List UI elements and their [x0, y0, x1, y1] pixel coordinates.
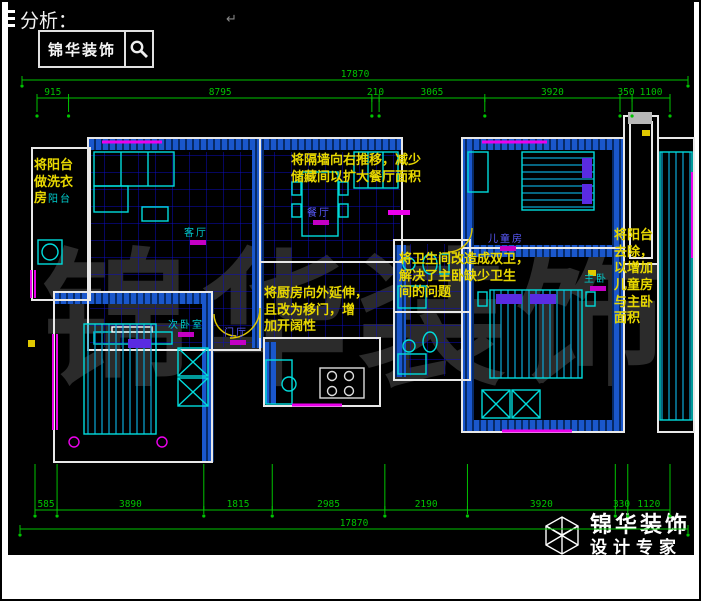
cube-logo-icon [542, 514, 582, 555]
paragraph-mark: ↵ [226, 12, 237, 27]
cad-canvas: 锦华装饰 分析： ↵ 锦华装饰 [8, 2, 694, 555]
footer-brand-tagline: 设计专家 [590, 538, 690, 555]
annotation-bathroom-double: 将卫生间改造成双卫， 解决了主卧缺少卫生 间的问题 [399, 252, 559, 302]
brand-name: 锦华装饰 [40, 32, 126, 66]
annotation-balcony-remove: 将阳台 去除， 以增加 儿童房 与主卧 面积 [614, 228, 672, 328]
clipped-text-fragment [8, 10, 15, 27]
analysis-label: 分析： [20, 6, 77, 33]
annotation-balcony-laundry: 将阳台 做洗衣 房 [34, 158, 100, 208]
annotation-partition-move: 将隔墙向右推移，减少 储藏间以扩大餐厅面积 [291, 153, 461, 186]
footer-brand-name: 锦华装饰 [590, 514, 690, 538]
footer-brand-logo: 锦华装饰 设计专家 [542, 514, 690, 555]
magnifier-icon [126, 32, 152, 66]
annotation-kitchen-extend: 将厨房向外延伸， 且改为移门，增 加开阔性 [264, 286, 390, 336]
floorplan-analysis-image: 锦华装饰 分析： ↵ 锦华装饰 [0, 0, 701, 601]
brand-logo-box: 锦华装饰 [38, 30, 154, 68]
